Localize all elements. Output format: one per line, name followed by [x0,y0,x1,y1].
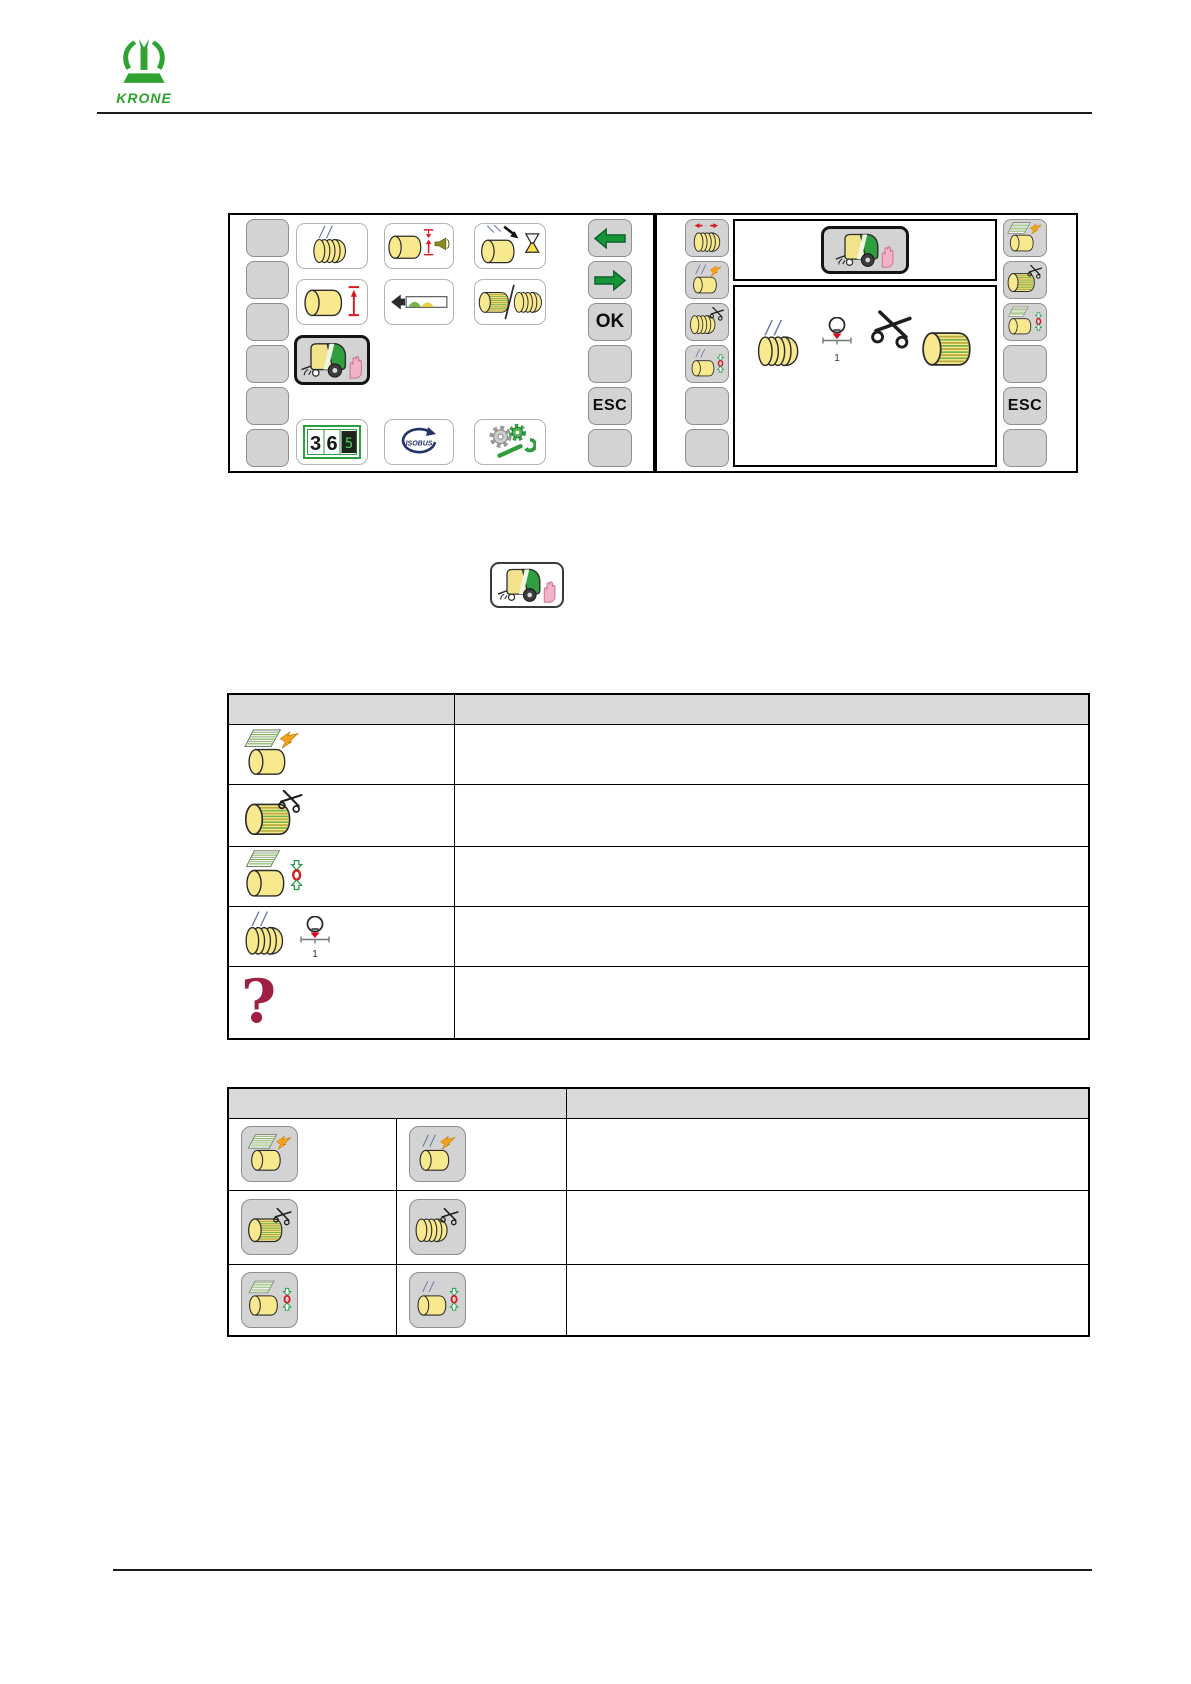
twine-slip-indicator-icon: 1 [241,910,337,962]
net-cut-scissors-icon [241,790,307,840]
net-feed-softkey-icon [241,1126,298,1182]
table2-cell-description [566,1190,1089,1264]
table-row [228,1264,1089,1336]
right-screen-softkey-r4-blank [1003,345,1047,383]
table2-cell-description [566,1118,1089,1190]
counter-digit-1: 3 [310,433,321,455]
nav-next-key [588,261,632,299]
left-screen-softkey-l6-blank [246,429,289,467]
net-feed-lightning-icon [246,1134,294,1174]
manual-mode-baler-hand-icon [495,565,559,605]
twine-slip-indicator-icon: 1 [817,313,857,369]
table2-cell-description [566,1264,1089,1336]
table2-header-softkeys [228,1088,566,1118]
table2-cell-net-softkey [228,1190,396,1264]
table-row [228,1190,1089,1264]
left-screen-softkey-l1-blank [246,219,289,257]
manual-mode-baler-hand-icon [834,230,896,270]
twine-cut-scissors-icon [688,307,726,337]
menu-item-settings [474,419,546,465]
table1-cell-icon [228,724,454,784]
table2-cell-net-softkey [228,1264,396,1336]
table1-cell-description [454,906,1089,966]
table2-header-description [566,1088,1089,1118]
twine-feed-lightning-icon [413,1134,461,1174]
esc-key: ESC [588,387,632,425]
krone-logo-text: KRONE [108,90,180,106]
left-screen-softkey-l2-blank [246,261,289,299]
manual-mode-work-area: 1 [733,285,997,467]
table-row [228,1118,1089,1190]
table2-cell-twine-softkey [396,1118,566,1190]
left-screen-softkey-r4-blank [588,345,632,383]
question-mark-icon: ? [241,967,276,1037]
bale-tying-delay-hourglass-icon [478,225,542,267]
twine-cut-softkey [685,303,729,341]
manual-mode-header-badge [821,226,909,274]
menu-item-tying-delay [474,223,546,269]
bale-diameter-setting-icon [302,281,362,323]
menu-item-manual-mode-selected [294,335,370,385]
net-feed-softkey [1003,219,1047,257]
twine-zero-softkey-icon [409,1272,466,1328]
left-screen-softkey-l4-blank [246,345,289,383]
net-cut-softkey [1003,261,1047,299]
table1-cell-icon [228,846,454,906]
manual-mode-inline-icon [490,562,564,608]
left-screen-softkey-r6-blank [588,429,632,467]
net-cut-scissors-icon [246,1208,294,1246]
right-screen-softkey-r6-blank [1003,429,1047,467]
net-zero-position-icon [246,1280,294,1320]
isobus-label: ISOBUS [406,441,433,448]
esc-key-label: ESC [593,397,627,415]
table-row [228,724,1089,784]
menu-item-bale-diameter [296,279,368,325]
ok-key: OK [588,303,632,341]
nav-previous-key [588,219,632,257]
slip-scale-value: 1 [834,353,840,364]
table1-cell-description [454,724,1089,784]
net-zero-position-icon [241,850,307,902]
twine-cut-softkey-icon [409,1199,466,1255]
twine-move-arrows-icon [689,222,725,255]
twine-feed-softkey [685,261,729,299]
bale-diameter-signal-horn-icon [386,226,452,266]
softkeys-table [227,1087,1090,1337]
right-screen-esc-label: ESC [1008,397,1042,415]
table1-cell-description [454,966,1089,1039]
menu-item-wrap-selection [474,279,546,325]
counter-digit-2: 6 [326,433,337,455]
green-arrow-right-icon [594,270,626,291]
net-bale-icon [919,327,973,371]
net-cut-scissors-icon [1006,265,1044,295]
bale-counter-icon: 3 6 5 [303,425,361,459]
table-row: ? [228,966,1089,1039]
table1-cell-icon: 1 [228,906,454,966]
terminal-screen-main-menu: 3 6 5 ISOBUS OK ESC [228,213,655,473]
table-row: 1 [228,906,1089,966]
twine-cut-scissors-icon [413,1208,461,1246]
net-zero-position-icon [1006,306,1044,338]
net-zero-softkey [1003,303,1047,341]
table1-header-description [454,694,1089,724]
twine-zero-position-icon [413,1280,461,1320]
twine-move-softkey [685,219,729,257]
menu-item-bale-counter: 3 6 5 [296,419,368,465]
ok-key-label: OK [596,311,625,333]
scissors-icon [868,307,921,354]
twine-zero-softkey [685,345,729,383]
isobus-icon: ISOBUS [392,425,446,459]
fill-direction-indicator-icon [389,292,449,312]
left-screen-softkey-l3-blank [246,303,289,341]
right-screen-softkey-l6-blank [685,429,729,467]
right-screen-esc-key: ESC [1003,387,1047,425]
krone-crown-icon [115,38,173,88]
table1-cell-icon: ? [228,966,454,1039]
twine-bale-icon [753,319,809,371]
counter-digit-3: 5 [345,436,353,452]
table1-header-row [228,694,1089,724]
net-cut-softkey-icon [241,1199,298,1255]
table2-header-row [228,1088,1089,1118]
right-screen-softkey-l5-blank [685,387,729,425]
mode-header-box [733,219,997,281]
header-rule [97,112,1092,114]
twine-feed-softkey-icon [409,1126,466,1182]
settings-gears-wrench-icon [484,423,536,461]
manual-document-page: KRONE [0,0,1191,1684]
table2-cell-net-softkey [228,1118,396,1190]
footer-rule [113,1569,1092,1571]
table1-cell-description [454,846,1089,906]
menu-item-twine-bale [296,223,368,269]
menu-item-isobus: ISOBUS [384,419,454,465]
terminal-screen-manual-mode: 1 ESC [655,213,1078,473]
manual-mode-baler-hand-icon [300,339,364,381]
table-row [228,784,1089,846]
table1-cell-description [454,784,1089,846]
twine-zero-position-icon [688,348,726,380]
table1-cell-icon [228,784,454,846]
menu-item-diameter-signal [384,223,454,269]
left-screen-softkey-l5-blank [246,387,289,425]
net-twine-selection-icon [477,284,543,320]
krone-logo: KRONE [108,38,180,106]
net-zero-softkey-icon [241,1272,298,1328]
table2-cell-twine-softkey [396,1190,566,1264]
net-feed-lightning-icon [1006,222,1044,254]
slip-scale-value: 1 [312,949,318,960]
twine-feed-lightning-icon [688,264,726,296]
table1-header-symbol [228,694,454,724]
table2-cell-twine-softkey [396,1264,566,1336]
table-row [228,846,1089,906]
display-symbols-table: 1 ? [227,693,1090,1040]
green-arrow-left-icon [594,228,626,249]
net-feed-lightning-icon [241,729,303,779]
twine-bale-icon [305,225,359,267]
menu-item-fill-indicator [384,279,454,325]
